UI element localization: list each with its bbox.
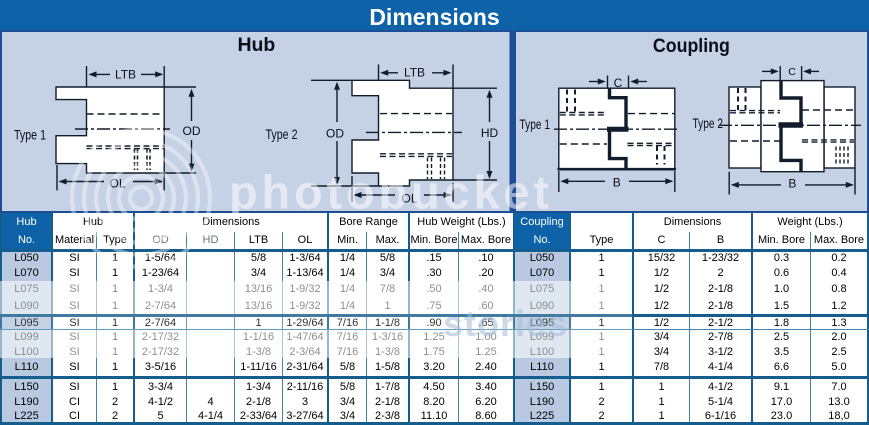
svg-text:photobucket: photobucket [229,166,553,219]
